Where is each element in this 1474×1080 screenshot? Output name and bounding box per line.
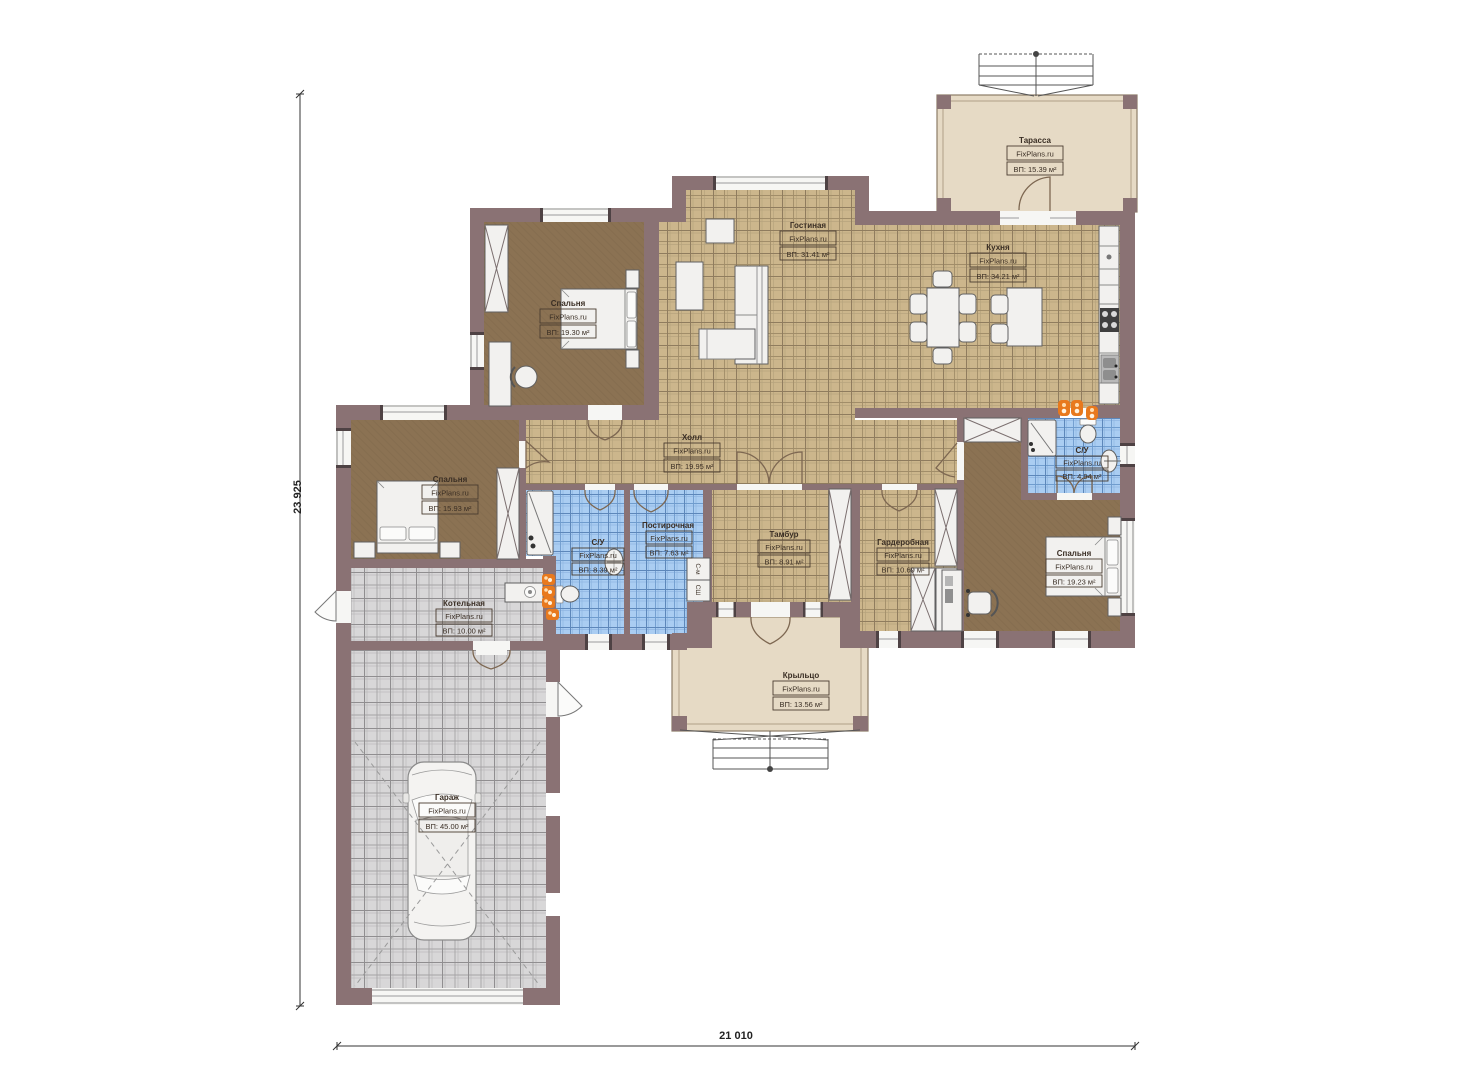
svg-text:ВП: 15.39 м²: ВП: 15.39 м² [1013, 165, 1057, 174]
svg-text:FixPlans.ru: FixPlans.ru [884, 551, 922, 560]
svg-text:Гардеробная: Гардеробная [877, 538, 929, 547]
svg-text:FixPlans.ru: FixPlans.ru [1016, 150, 1054, 159]
svg-text:FixPlans.ru: FixPlans.ru [1055, 563, 1093, 572]
svg-text:ВП: 31.41 м²: ВП: 31.41 м² [786, 250, 830, 259]
svg-text:ВП: 19.30 м²: ВП: 19.30 м² [546, 328, 590, 337]
svg-text:ВП: 10.00 м²: ВП: 10.00 м² [442, 627, 486, 636]
svg-text:ВП: 10.69 м²: ВП: 10.69 м² [881, 566, 925, 575]
svg-text:ВП: 45.00 м²: ВП: 45.00 м² [425, 822, 469, 831]
svg-text:FixPlans.ru: FixPlans.ru [789, 235, 827, 244]
svg-text:Котельная: Котельная [443, 599, 485, 608]
svg-text:ВП: 13.56 м²: ВП: 13.56 м² [779, 700, 823, 709]
svg-text:21 010: 21 010 [719, 1030, 753, 1042]
svg-text:ВП: 8.39 м²: ВП: 8.39 м² [579, 566, 618, 575]
svg-text:Спальня: Спальня [551, 299, 586, 308]
svg-text:Спальня: Спальня [1057, 549, 1092, 558]
svg-text:FixPlans.ru: FixPlans.ru [1063, 459, 1101, 468]
svg-text:С/У: С/У [592, 538, 606, 547]
svg-text:ВП: 7.63 м²: ВП: 7.63 м² [650, 549, 689, 558]
svg-text:ВП: 19.23 м²: ВП: 19.23 м² [1052, 578, 1096, 587]
svg-text:FixPlans.ru: FixPlans.ru [782, 685, 820, 694]
svg-text:СШ: СШ [694, 585, 701, 596]
svg-text:FixPlans.ru: FixPlans.ru [549, 313, 587, 322]
svg-text:FixPlans.ru: FixPlans.ru [445, 612, 483, 621]
svg-text:ВП: 34.21 м²: ВП: 34.21 м² [976, 272, 1020, 281]
svg-text:ВП: 19.95 м²: ВП: 19.95 м² [670, 462, 714, 471]
svg-text:ВП: 8.91 м²: ВП: 8.91 м² [765, 558, 804, 567]
svg-text:FixPlans.ru: FixPlans.ru [579, 551, 617, 560]
svg-text:Спальня: Спальня [433, 475, 468, 484]
svg-text:Кухня: Кухня [986, 243, 1010, 252]
svg-text:Крыльцо: Крыльцо [783, 671, 820, 680]
svg-text:Гараж: Гараж [435, 793, 459, 802]
svg-text:С-м: С-м [694, 563, 701, 575]
svg-text:Холл: Холл [682, 433, 702, 442]
svg-text:Тарасса: Тарасса [1019, 136, 1051, 145]
svg-text:Тамбур: Тамбур [769, 530, 798, 539]
svg-text:FixPlans.ru: FixPlans.ru [431, 489, 469, 498]
svg-text:Гостиная: Гостиная [790, 221, 826, 230]
svg-text:ВП: 15.93 м²: ВП: 15.93 м² [428, 504, 472, 513]
svg-text:ВП: 4.94 м²: ВП: 4.94 м² [1063, 472, 1102, 481]
svg-text:FixPlans.ru: FixPlans.ru [979, 257, 1017, 266]
svg-text:Постирочная: Постирочная [642, 521, 694, 530]
svg-text:FixPlans.ru: FixPlans.ru [650, 534, 688, 543]
svg-text:FixPlans.ru: FixPlans.ru [765, 543, 803, 552]
svg-text:FixPlans.ru: FixPlans.ru [428, 807, 466, 816]
svg-text:23 925: 23 925 [292, 480, 304, 514]
svg-text:С/У: С/У [1076, 446, 1090, 455]
svg-text:FixPlans.ru: FixPlans.ru [673, 447, 711, 456]
